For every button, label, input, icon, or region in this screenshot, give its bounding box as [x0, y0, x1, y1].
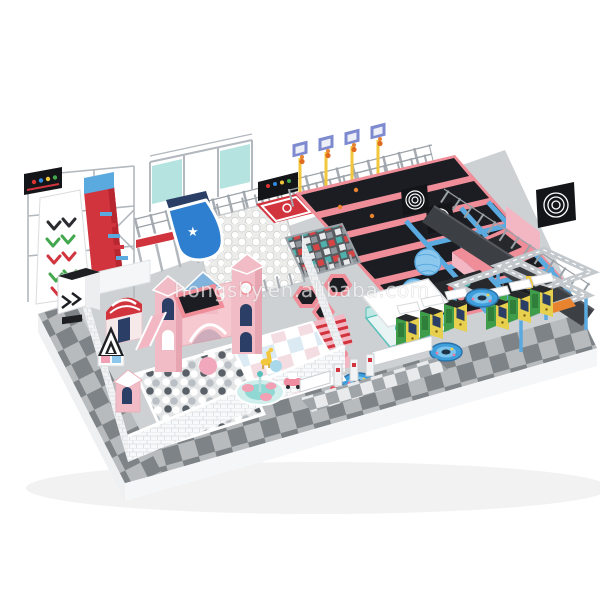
basketball-hoop — [318, 134, 334, 186]
spinning-ride — [466, 289, 498, 307]
claw-machine — [530, 273, 554, 317]
star-icon: ★ — [187, 225, 199, 240]
blue-ball — [270, 360, 282, 372]
turnstile — [350, 359, 358, 381]
playground-render: ★ — [0, 0, 600, 600]
watermark: hongshy.en.alibaba.com — [174, 278, 430, 302]
big-pink-ball — [199, 357, 217, 375]
turnstile — [334, 364, 342, 386]
claw-machine — [444, 288, 468, 332]
spinning-ride — [430, 343, 462, 361]
turnstile — [366, 354, 374, 376]
claw-machine — [508, 279, 532, 323]
castle-tower-right — [230, 254, 264, 354]
claw-machine — [396, 302, 420, 346]
